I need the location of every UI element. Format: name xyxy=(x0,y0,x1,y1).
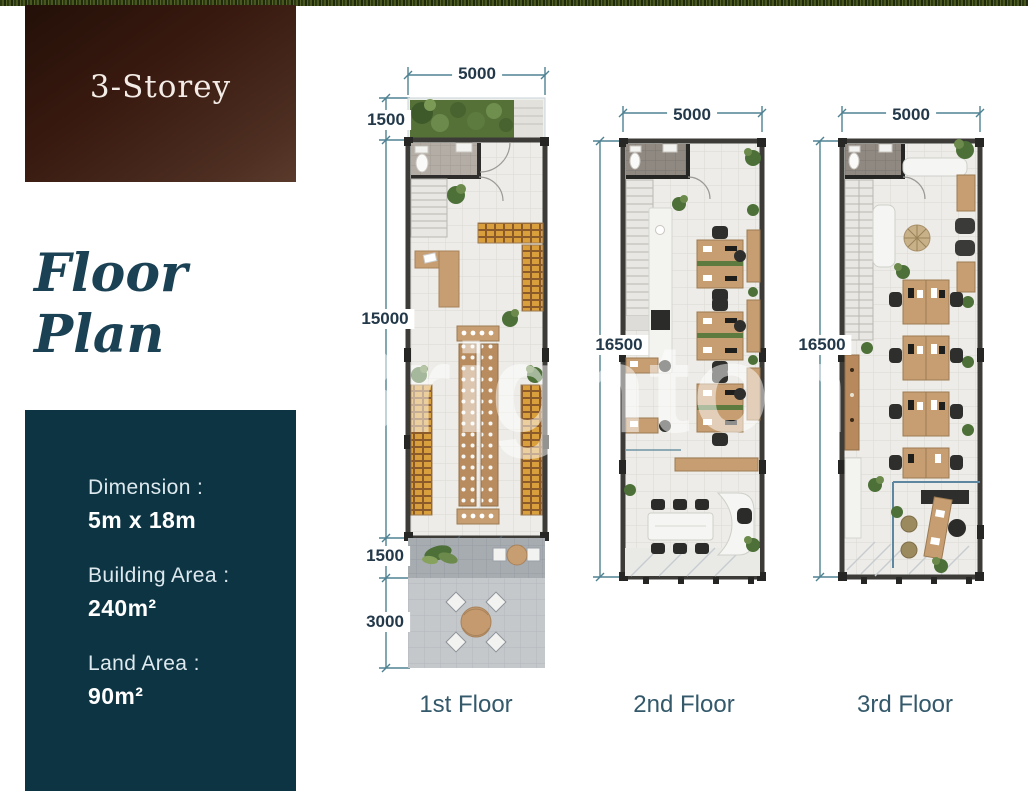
plan1-left-dim-1: 1500 xyxy=(361,110,411,130)
terrace xyxy=(408,538,545,578)
plan1-left-dim-3: 1500 xyxy=(360,546,410,566)
spec-value: 90m² xyxy=(88,683,286,710)
plan3-left-dim-1: 16500 xyxy=(792,335,851,355)
spec-label: Land Area : xyxy=(88,652,286,676)
spec-item-dimension: Dimension : 5m x 18m xyxy=(88,476,286,534)
plan1-left-dim-4: 3000 xyxy=(360,612,410,632)
plan2-width-dim: 5000 xyxy=(667,105,717,125)
patio xyxy=(408,578,545,668)
plan1-left-dim-2: 15000 xyxy=(355,309,414,329)
spec-item-land-area: Land Area : 90m² xyxy=(88,652,286,710)
spec-value: 240m² xyxy=(88,595,286,622)
storey-badge-title: 3-Storey xyxy=(90,69,231,119)
spec-value: 5m x 18m xyxy=(88,507,286,534)
storey-badge: 3-Storey xyxy=(25,5,296,182)
spec-label: Dimension : xyxy=(88,476,286,500)
spec-box: Dimension : 5m x 18m Building Area : 240… xyxy=(25,410,296,791)
plan3-label: 3rd Floor xyxy=(857,691,953,719)
roof-garden xyxy=(408,98,545,140)
plan2-label: 2nd Floor xyxy=(633,691,734,719)
page-title: Floor Plan xyxy=(34,258,300,350)
floor-plan-1-drawing xyxy=(360,55,555,680)
floor-plan-page: 3-Storey Floor Plan Dimension : 5m x 18m… xyxy=(0,0,1028,791)
plan3-width-dim: 5000 xyxy=(886,105,936,125)
spec-label: Building Area : xyxy=(88,564,286,588)
plan2-left-dim-1: 16500 xyxy=(589,335,648,355)
plan1-label: 1st Floor xyxy=(419,691,512,719)
staircase xyxy=(845,180,873,340)
plan1-width-dim: 5000 xyxy=(452,64,502,84)
spec-item-building-area: Building Area : 240m² xyxy=(88,564,286,622)
